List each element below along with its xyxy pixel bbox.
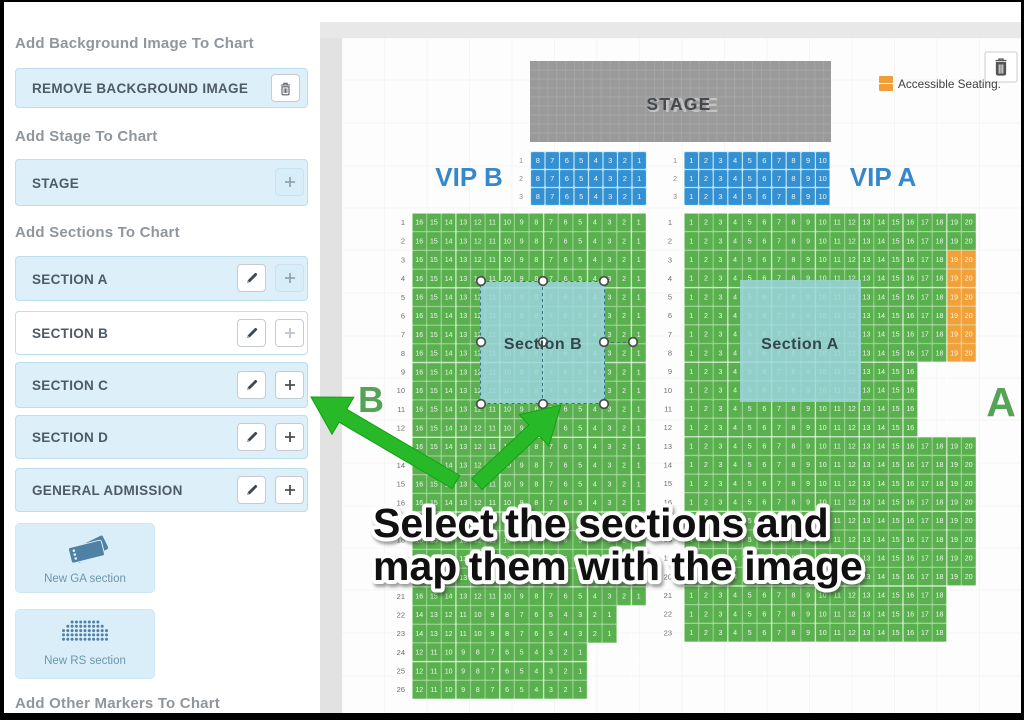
- svg-text:15: 15: [892, 593, 900, 600]
- svg-text:2: 2: [704, 350, 708, 357]
- svg-text:5: 5: [748, 406, 752, 413]
- svg-text:4: 4: [534, 687, 538, 694]
- svg-text:8: 8: [476, 668, 480, 675]
- svg-text:12: 12: [474, 425, 482, 432]
- svg-text:5: 5: [520, 650, 524, 657]
- svg-text:16: 16: [906, 574, 914, 581]
- svg-text:17: 17: [921, 276, 929, 283]
- svg-text:5: 5: [578, 481, 582, 488]
- svg-text:7: 7: [777, 425, 781, 432]
- svg-text:3: 3: [668, 255, 672, 264]
- svg-text:12: 12: [415, 650, 423, 657]
- svg-text:6: 6: [564, 463, 568, 470]
- svg-text:15: 15: [430, 220, 438, 227]
- svg-text:11: 11: [664, 405, 672, 414]
- svg-text:11: 11: [430, 650, 437, 657]
- svg-text:15: 15: [892, 518, 900, 525]
- svg-text:4: 4: [733, 406, 737, 413]
- svg-text:14: 14: [445, 313, 453, 320]
- svg-text:5: 5: [578, 238, 582, 245]
- svg-text:6: 6: [401, 311, 405, 320]
- svg-text:14: 14: [877, 574, 885, 581]
- svg-text:3: 3: [719, 294, 723, 301]
- svg-text:3: 3: [719, 238, 723, 245]
- svg-text:11: 11: [489, 220, 496, 227]
- svg-text:9: 9: [461, 650, 465, 657]
- svg-text:14: 14: [664, 460, 672, 469]
- svg-text:13: 13: [863, 462, 871, 469]
- svg-text:6: 6: [762, 406, 766, 413]
- svg-text:15: 15: [430, 238, 438, 245]
- svg-text:2: 2: [622, 444, 626, 451]
- svg-text:13: 13: [459, 594, 467, 601]
- svg-text:16: 16: [415, 594, 423, 601]
- svg-text:7: 7: [777, 192, 781, 201]
- svg-text:9: 9: [806, 462, 810, 469]
- svg-text:14: 14: [877, 444, 885, 451]
- svg-text:15: 15: [430, 313, 438, 320]
- svg-text:1: 1: [637, 332, 641, 339]
- svg-text:5: 5: [668, 293, 672, 302]
- svg-text:12: 12: [445, 612, 453, 619]
- svg-text:18: 18: [936, 593, 944, 600]
- svg-text:5: 5: [748, 444, 752, 451]
- svg-text:4: 4: [733, 220, 737, 227]
- svg-text:20: 20: [965, 276, 973, 283]
- svg-text:11: 11: [834, 518, 841, 525]
- svg-text:8: 8: [668, 349, 672, 358]
- svg-text:13: 13: [863, 537, 871, 544]
- svg-text:5: 5: [748, 257, 752, 264]
- svg-text:5: 5: [520, 668, 524, 675]
- svg-text:3: 3: [608, 174, 612, 183]
- svg-text:A: A: [986, 379, 1016, 425]
- svg-text:14: 14: [877, 313, 885, 320]
- svg-text:12: 12: [474, 444, 482, 451]
- svg-text:11: 11: [834, 462, 841, 469]
- svg-text:14: 14: [877, 593, 885, 600]
- svg-text:3: 3: [607, 257, 611, 264]
- svg-text:11: 11: [834, 500, 841, 507]
- svg-text:15: 15: [892, 481, 900, 488]
- svg-text:6: 6: [565, 174, 569, 183]
- svg-text:18: 18: [936, 611, 944, 618]
- svg-text:3: 3: [519, 194, 523, 201]
- svg-text:2: 2: [704, 388, 708, 395]
- svg-text:6: 6: [762, 156, 766, 165]
- svg-text:12: 12: [415, 668, 423, 675]
- svg-text:20: 20: [965, 537, 973, 544]
- svg-text:13: 13: [863, 332, 871, 339]
- svg-text:4: 4: [534, 650, 538, 657]
- svg-text:19: 19: [950, 555, 958, 562]
- svg-text:8: 8: [536, 192, 540, 201]
- svg-text:18: 18: [936, 294, 944, 301]
- svg-text:8: 8: [505, 612, 509, 619]
- svg-text:1: 1: [637, 463, 641, 470]
- svg-text:3: 3: [718, 192, 722, 201]
- svg-text:5: 5: [579, 192, 583, 201]
- svg-text:11: 11: [460, 631, 467, 638]
- svg-text:6: 6: [565, 192, 569, 201]
- svg-text:2: 2: [593, 631, 597, 638]
- svg-text:4: 4: [401, 274, 405, 283]
- svg-text:10: 10: [445, 687, 453, 694]
- svg-text:16: 16: [906, 220, 914, 227]
- svg-text:4: 4: [733, 294, 737, 301]
- svg-text:16: 16: [906, 369, 914, 376]
- svg-text:17: 17: [921, 555, 929, 562]
- svg-text:10: 10: [445, 650, 453, 657]
- svg-text:8: 8: [791, 192, 795, 201]
- svg-text:8: 8: [534, 238, 538, 245]
- svg-text:8: 8: [534, 257, 538, 264]
- svg-text:14: 14: [445, 444, 453, 451]
- svg-text:16: 16: [415, 332, 423, 339]
- svg-text:15: 15: [430, 594, 438, 601]
- svg-text:9: 9: [401, 368, 405, 377]
- svg-text:14: 14: [445, 332, 453, 339]
- svg-text:16: 16: [906, 444, 914, 451]
- svg-text:5: 5: [748, 192, 752, 201]
- svg-text:1: 1: [689, 462, 693, 469]
- svg-text:1: 1: [637, 444, 641, 451]
- svg-text:15: 15: [892, 369, 900, 376]
- svg-text:17: 17: [921, 313, 929, 320]
- svg-text:9: 9: [806, 406, 810, 413]
- svg-text:13: 13: [459, 407, 467, 414]
- svg-text:6: 6: [505, 687, 509, 694]
- svg-text:19: 19: [950, 313, 958, 320]
- svg-text:2: 2: [622, 425, 626, 432]
- svg-text:15: 15: [892, 220, 900, 227]
- svg-text:1: 1: [637, 276, 641, 283]
- svg-text:16: 16: [415, 369, 423, 376]
- svg-text:6: 6: [762, 462, 766, 469]
- svg-text:6: 6: [564, 425, 568, 432]
- svg-text:2: 2: [401, 237, 405, 246]
- svg-text:18: 18: [936, 537, 944, 544]
- svg-text:16: 16: [415, 257, 423, 264]
- svg-text:14: 14: [877, 257, 885, 264]
- svg-text:12: 12: [474, 238, 482, 245]
- svg-text:18: 18: [936, 462, 944, 469]
- svg-text:8: 8: [792, 611, 796, 618]
- svg-text:10: 10: [503, 481, 511, 488]
- svg-text:1: 1: [637, 220, 641, 227]
- svg-text:6: 6: [564, 481, 568, 488]
- svg-text:14: 14: [877, 220, 885, 227]
- svg-text:16: 16: [906, 611, 914, 618]
- svg-text:9: 9: [806, 220, 810, 227]
- svg-text:15: 15: [892, 462, 900, 469]
- svg-text:4: 4: [733, 276, 737, 283]
- svg-text:7: 7: [777, 593, 781, 600]
- svg-text:6: 6: [565, 156, 569, 165]
- svg-text:16: 16: [415, 313, 423, 320]
- svg-text:1: 1: [689, 313, 693, 320]
- svg-text:17: 17: [921, 537, 929, 544]
- svg-text:8: 8: [792, 481, 796, 488]
- svg-text:17: 17: [921, 500, 929, 507]
- svg-text:1: 1: [637, 295, 641, 302]
- svg-text:16: 16: [415, 295, 423, 302]
- svg-text:8: 8: [792, 444, 796, 451]
- svg-text:2: 2: [704, 369, 708, 376]
- svg-text:17: 17: [921, 462, 929, 469]
- svg-text:17: 17: [921, 444, 929, 451]
- svg-text:10: 10: [474, 612, 482, 619]
- svg-text:14: 14: [877, 350, 885, 357]
- svg-text:20: 20: [965, 481, 973, 488]
- svg-text:9: 9: [520, 220, 524, 227]
- svg-text:6: 6: [534, 631, 538, 638]
- svg-text:2: 2: [704, 425, 708, 432]
- svg-text:Select the sections and: Select the sections and: [373, 500, 829, 546]
- svg-text:6: 6: [564, 407, 568, 414]
- svg-text:23: 23: [664, 628, 672, 637]
- svg-text:4: 4: [733, 238, 737, 245]
- svg-text:3: 3: [718, 156, 722, 165]
- svg-text:3: 3: [673, 194, 677, 201]
- svg-text:10: 10: [819, 238, 827, 245]
- svg-text:15: 15: [430, 351, 438, 358]
- svg-text:16: 16: [415, 481, 423, 488]
- svg-text:7: 7: [549, 238, 553, 245]
- svg-text:10: 10: [819, 425, 827, 432]
- svg-text:4: 4: [593, 594, 597, 601]
- svg-text:8: 8: [791, 156, 795, 165]
- svg-text:3: 3: [719, 425, 723, 432]
- svg-text:13: 13: [863, 388, 871, 395]
- svg-text:16: 16: [906, 593, 914, 600]
- svg-text:2: 2: [704, 611, 708, 618]
- svg-text:3: 3: [607, 463, 611, 470]
- svg-text:14: 14: [415, 631, 423, 638]
- svg-text:2: 2: [622, 332, 626, 339]
- svg-text:10: 10: [819, 156, 827, 165]
- svg-text:13: 13: [863, 350, 871, 357]
- svg-text:3: 3: [719, 611, 723, 618]
- svg-text:13: 13: [459, 351, 467, 358]
- svg-text:13: 13: [863, 555, 871, 562]
- svg-text:18: 18: [936, 444, 944, 451]
- svg-text:VIP A: VIP A: [850, 162, 917, 192]
- svg-text:19: 19: [950, 238, 958, 245]
- svg-text:18: 18: [936, 555, 944, 562]
- svg-text:14: 14: [415, 612, 423, 619]
- svg-text:16: 16: [415, 388, 423, 395]
- svg-text:10: 10: [819, 444, 827, 451]
- svg-text:9: 9: [520, 238, 524, 245]
- svg-text:8: 8: [792, 238, 796, 245]
- svg-text:14: 14: [877, 406, 885, 413]
- svg-text:15: 15: [892, 500, 900, 507]
- svg-text:13: 13: [863, 518, 871, 525]
- svg-text:4: 4: [733, 481, 737, 488]
- svg-text:1: 1: [689, 257, 693, 264]
- svg-text:7: 7: [549, 481, 553, 488]
- svg-text:1: 1: [689, 611, 693, 618]
- svg-text:7: 7: [777, 444, 781, 451]
- svg-text:1: 1: [689, 630, 693, 637]
- svg-text:13: 13: [863, 276, 871, 283]
- svg-text:4: 4: [733, 425, 737, 432]
- svg-text:4: 4: [564, 631, 568, 638]
- svg-text:7: 7: [520, 631, 524, 638]
- svg-text:3: 3: [719, 257, 723, 264]
- svg-text:20: 20: [965, 220, 973, 227]
- svg-text:18: 18: [936, 276, 944, 283]
- svg-text:2: 2: [623, 174, 627, 183]
- svg-text:5: 5: [748, 481, 752, 488]
- svg-text:15: 15: [892, 425, 900, 432]
- svg-text:3: 3: [719, 388, 723, 395]
- svg-text:12: 12: [848, 611, 856, 618]
- svg-text:10: 10: [397, 386, 405, 395]
- svg-text:3: 3: [719, 593, 723, 600]
- svg-text:19: 19: [950, 518, 958, 525]
- svg-text:1: 1: [519, 158, 523, 165]
- svg-text:24: 24: [397, 648, 405, 657]
- svg-text:16: 16: [415, 220, 423, 227]
- svg-text:18: 18: [936, 238, 944, 245]
- svg-text:4: 4: [594, 174, 598, 183]
- svg-text:1: 1: [689, 156, 693, 165]
- svg-text:7: 7: [549, 257, 553, 264]
- svg-text:5: 5: [578, 425, 582, 432]
- svg-text:Section B: Section B: [504, 336, 582, 353]
- svg-text:3: 3: [607, 332, 611, 339]
- svg-text:16: 16: [415, 351, 423, 358]
- svg-text:5: 5: [578, 444, 582, 451]
- svg-text:11: 11: [430, 668, 437, 675]
- svg-text:5: 5: [578, 220, 582, 227]
- svg-text:2: 2: [622, 407, 626, 414]
- svg-text:2: 2: [704, 192, 708, 201]
- svg-text:13: 13: [863, 425, 871, 432]
- svg-text:15: 15: [430, 425, 438, 432]
- svg-text:1: 1: [637, 369, 641, 376]
- svg-text:3: 3: [607, 369, 611, 376]
- svg-text:14: 14: [877, 276, 885, 283]
- svg-text:10: 10: [819, 257, 827, 264]
- svg-text:2: 2: [704, 630, 708, 637]
- svg-text:14: 14: [877, 388, 885, 395]
- svg-text:11: 11: [834, 406, 841, 413]
- svg-text:13: 13: [863, 500, 871, 507]
- svg-text:4: 4: [593, 444, 597, 451]
- svg-text:14: 14: [877, 369, 885, 376]
- svg-text:12: 12: [848, 593, 856, 600]
- svg-text:1: 1: [637, 388, 641, 395]
- svg-text:7: 7: [550, 192, 554, 201]
- svg-text:15: 15: [430, 481, 438, 488]
- svg-text:10: 10: [503, 220, 511, 227]
- svg-text:12: 12: [848, 257, 856, 264]
- svg-text:8: 8: [792, 425, 796, 432]
- svg-text:12: 12: [848, 444, 856, 451]
- svg-text:19: 19: [950, 574, 958, 581]
- svg-text:20: 20: [965, 574, 973, 581]
- svg-text:15: 15: [430, 388, 438, 395]
- svg-text:14: 14: [877, 500, 885, 507]
- svg-text:7: 7: [777, 174, 781, 183]
- svg-text:1: 1: [637, 425, 641, 432]
- svg-text:15: 15: [430, 407, 438, 414]
- svg-text:11: 11: [489, 257, 496, 264]
- svg-text:7: 7: [520, 612, 524, 619]
- svg-text:6: 6: [505, 650, 509, 657]
- svg-text:13: 13: [459, 220, 467, 227]
- svg-text:11: 11: [834, 481, 841, 488]
- svg-text:8: 8: [792, 406, 796, 413]
- svg-text:2: 2: [622, 369, 626, 376]
- svg-text:18: 18: [936, 350, 944, 357]
- svg-text:18: 18: [936, 630, 944, 637]
- svg-text:17: 17: [921, 220, 929, 227]
- svg-text:2: 2: [564, 668, 568, 675]
- svg-text:12: 12: [474, 220, 482, 227]
- svg-text:13: 13: [459, 257, 467, 264]
- svg-text:22: 22: [664, 610, 672, 619]
- svg-text:8: 8: [792, 593, 796, 600]
- svg-text:18: 18: [936, 500, 944, 507]
- svg-text:16: 16: [906, 238, 914, 245]
- svg-text:6: 6: [762, 220, 766, 227]
- svg-text:3: 3: [719, 313, 723, 320]
- svg-text:7: 7: [777, 611, 781, 618]
- svg-text:18: 18: [936, 574, 944, 581]
- svg-text:5: 5: [578, 257, 582, 264]
- svg-text:14: 14: [877, 462, 885, 469]
- svg-text:8: 8: [792, 462, 796, 469]
- svg-text:11: 11: [834, 257, 841, 264]
- svg-text:7: 7: [550, 156, 554, 165]
- svg-text:5: 5: [549, 631, 553, 638]
- svg-text:7: 7: [777, 481, 781, 488]
- svg-text:7: 7: [777, 257, 781, 264]
- svg-text:map them with the image: map them with the image: [373, 543, 863, 589]
- svg-text:8: 8: [792, 630, 796, 637]
- svg-text:4: 4: [733, 611, 737, 618]
- svg-text:1: 1: [637, 351, 641, 358]
- svg-text:13: 13: [863, 611, 871, 618]
- svg-text:4: 4: [593, 238, 597, 245]
- svg-text:15: 15: [430, 257, 438, 264]
- svg-text:4: 4: [534, 668, 538, 675]
- svg-text:7: 7: [777, 462, 781, 469]
- svg-text:2: 2: [622, 295, 626, 302]
- svg-text:2: 2: [704, 156, 708, 165]
- svg-text:13: 13: [863, 444, 871, 451]
- svg-text:3: 3: [549, 650, 553, 657]
- svg-text:13: 13: [459, 295, 467, 302]
- svg-text:3: 3: [607, 594, 611, 601]
- svg-text:2: 2: [519, 176, 523, 183]
- svg-text:17: 17: [921, 350, 929, 357]
- svg-text:15: 15: [892, 238, 900, 245]
- svg-text:1: 1: [689, 350, 693, 357]
- svg-text:7: 7: [777, 156, 781, 165]
- svg-text:14: 14: [445, 425, 453, 432]
- svg-text:13: 13: [459, 463, 467, 470]
- svg-text:12: 12: [848, 425, 856, 432]
- svg-text:13: 13: [863, 630, 871, 637]
- svg-text:15: 15: [664, 479, 672, 488]
- svg-text:4: 4: [594, 156, 598, 165]
- svg-text:3: 3: [719, 369, 723, 376]
